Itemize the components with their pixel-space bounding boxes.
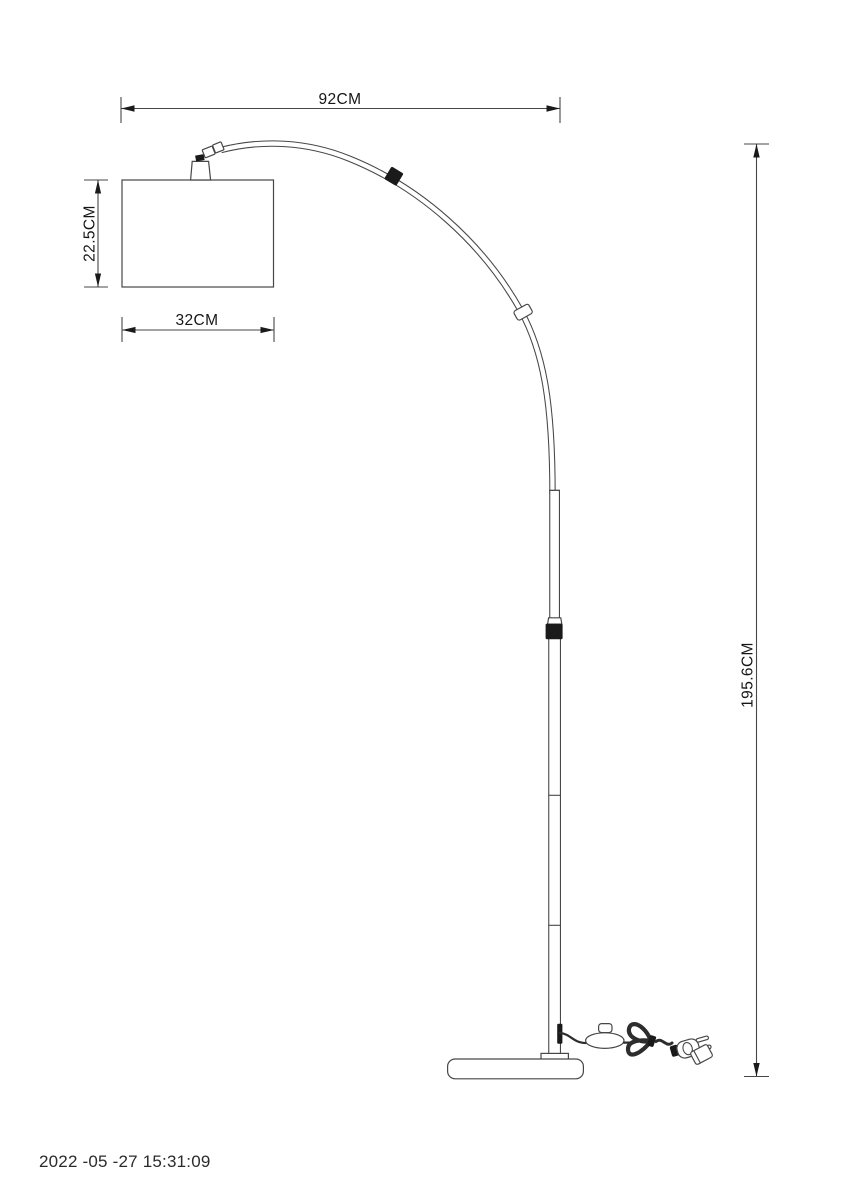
arrow-down-icon: [753, 1063, 759, 1077]
coiled-cord: [628, 1024, 651, 1054]
dim-shade-height: 22.5CM: [82, 180, 109, 287]
base-plate: [448, 1059, 584, 1079]
plug-pin: [696, 1036, 709, 1043]
foot-switch: [586, 1033, 624, 1049]
head-pivot: [195, 154, 205, 161]
lamp-head: [122, 142, 274, 287]
lamp-pole: [546, 490, 563, 1057]
arrow-left-icon: [121, 105, 135, 111]
dim-overall-height: 195.6CM: [740, 144, 770, 1077]
dim-label-overall-height: 195.6CM: [740, 642, 757, 708]
dim-shade-width: 32CM: [122, 312, 274, 342]
power-cord: [656, 1040, 672, 1044]
arrow-up-icon: [95, 180, 101, 194]
power-cord: [560, 1033, 586, 1043]
arrow-up-icon: [753, 144, 759, 158]
foot-switch-button: [599, 1024, 612, 1033]
lamp-base: [448, 1053, 584, 1078]
socket-cover: [191, 161, 211, 180]
cord-assembly: [560, 1024, 713, 1066]
dim-label-shade-height: 22.5CM: [82, 205, 99, 262]
dim-label-shade-width: 32CM: [176, 312, 219, 329]
pole-clamp: [546, 624, 563, 640]
pole-collar: [548, 618, 562, 624]
lampshade: [122, 180, 274, 287]
drawing-canvas: 92CM 195.6CM: [0, 0, 848, 1200]
arrow-down-icon: [95, 274, 101, 288]
dim-label-overall-width: 92CM: [319, 91, 362, 108]
head-hinge: [202, 142, 225, 158]
dim-overall-width: 92CM: [121, 91, 560, 123]
arrow-left-icon: [122, 327, 136, 333]
base-collar: [541, 1053, 568, 1059]
floor-lamp-diagram: 92CM 195.6CM: [0, 0, 848, 1200]
timestamp: 2022 -05 -27 15:31:09: [39, 1152, 211, 1171]
arrow-right-icon: [547, 105, 561, 111]
arrow-right-icon: [261, 327, 275, 333]
